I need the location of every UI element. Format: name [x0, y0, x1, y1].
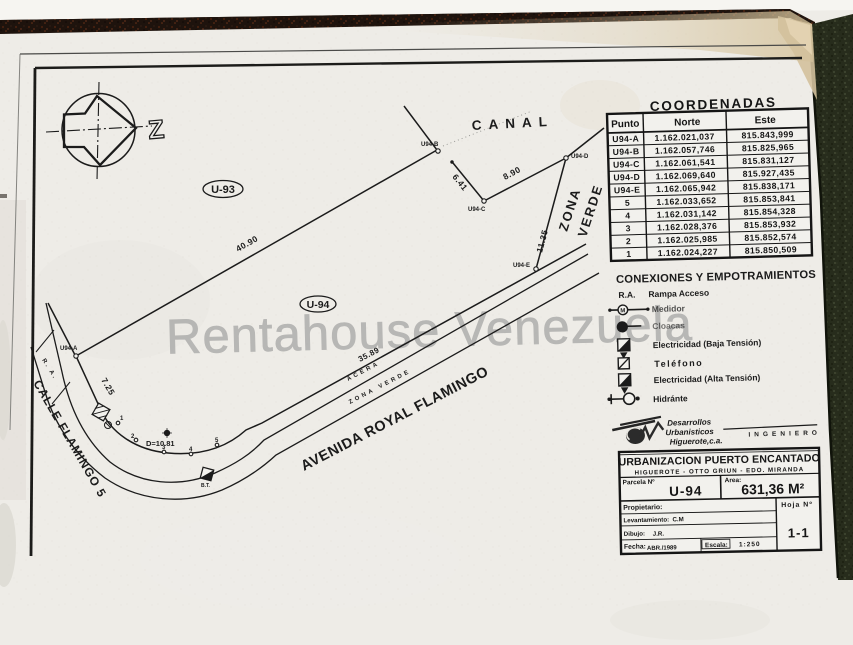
svg-text:U94-E: U94-E: [513, 263, 530, 269]
svg-text:M: M: [620, 308, 625, 314]
svg-text:J.R.: J.R.: [653, 531, 665, 538]
svg-text:U94-A: U94-A: [612, 133, 639, 144]
svg-text:1.162.025,985: 1.162.025,985: [657, 234, 717, 246]
svg-text:U94-A: U94-A: [60, 346, 78, 352]
svg-text:1.162.061,541: 1.162.061,541: [655, 157, 715, 169]
svg-text:R.A.: R.A.: [618, 290, 635, 300]
svg-text:1-1: 1-1: [788, 525, 810, 540]
svg-text:Fecha:: Fecha:: [624, 543, 646, 550]
svg-text:Propietario:: Propietario:: [623, 504, 662, 512]
svg-text:815.853,932: 815.853,932: [744, 219, 796, 230]
svg-text:U94-B: U94-B: [613, 146, 640, 157]
svg-text:Parcela Nº: Parcela Nº: [623, 479, 656, 487]
svg-text:1.162.031,142: 1.162.031,142: [657, 208, 717, 220]
svg-text:Hidránte: Hidránte: [653, 393, 688, 404]
svg-text:815.831,127: 815.831,127: [742, 155, 794, 166]
svg-text:U94-C: U94-C: [468, 207, 486, 213]
svg-text:U94-B: U94-B: [421, 142, 439, 148]
svg-text:815.853,841: 815.853,841: [743, 193, 795, 204]
svg-text:815.838,171: 815.838,171: [743, 180, 795, 191]
svg-text:B.T.: B.T.: [201, 483, 211, 489]
svg-text:Medidor: Medidor: [652, 303, 686, 314]
svg-text:1.162.028,376: 1.162.028,376: [657, 221, 717, 233]
svg-text:815.825,965: 815.825,965: [742, 142, 794, 153]
svg-text:U94-E: U94-E: [614, 185, 641, 196]
svg-text:815.852,574: 815.852,574: [744, 231, 796, 242]
svg-text:4: 4: [625, 210, 630, 220]
svg-text:1.162.057,746: 1.162.057,746: [655, 144, 715, 156]
svg-text:815.843,999: 815.843,999: [741, 129, 793, 140]
svg-text:U-94: U-94: [307, 299, 330, 311]
svg-text:U94-D: U94-D: [613, 172, 640, 183]
svg-text:1.162.069,640: 1.162.069,640: [656, 170, 716, 182]
svg-text:Escala:: Escala:: [705, 542, 728, 549]
svg-text:C.M: C.M: [672, 516, 683, 523]
svg-text:Z: Z: [147, 114, 166, 145]
svg-text:Desarrollos: Desarrollos: [667, 418, 712, 428]
svg-text:U94-D: U94-D: [571, 154, 589, 160]
svg-text:Teléfono: Teléfono: [654, 358, 703, 369]
svg-text:Norte: Norte: [674, 117, 701, 129]
svg-text:U-94: U-94: [669, 483, 703, 499]
svg-text:5: 5: [625, 198, 630, 208]
svg-text:Hoja Nº: Hoja Nº: [781, 501, 813, 509]
svg-text:3: 3: [625, 223, 630, 233]
svg-text:Punto: Punto: [611, 119, 640, 131]
svg-text:Dibujo:: Dibujo:: [624, 530, 645, 537]
svg-text:815.854,328: 815.854,328: [744, 206, 796, 217]
svg-text:1:250: 1:250: [739, 541, 761, 548]
svg-text:U94-C: U94-C: [613, 159, 640, 170]
svg-text:1.162.021,037: 1.162.021,037: [654, 131, 714, 143]
svg-text:2: 2: [626, 236, 631, 246]
svg-text:1.162.033,652: 1.162.033,652: [656, 195, 716, 207]
svg-text:Area:: Area:: [725, 477, 742, 484]
svg-text:D=10.81: D=10.81: [146, 439, 175, 448]
svg-text:Este: Este: [755, 115, 777, 127]
svg-text:1.162.065,942: 1.162.065,942: [656, 182, 716, 194]
svg-text:ABR./1989: ABR./1989: [647, 545, 677, 552]
svg-text:1: 1: [626, 249, 631, 259]
svg-text:631,36 M²: 631,36 M²: [741, 480, 805, 497]
svg-text:815.850,509: 815.850,509: [745, 244, 797, 255]
svg-text:Cloacas: Cloacas: [652, 320, 685, 331]
svg-text:Higuerote,c.a.: Higuerote,c.a.: [670, 436, 723, 446]
svg-text:815.927,435: 815.927,435: [742, 167, 794, 178]
svg-text:Rampa Acceso: Rampa Acceso: [648, 288, 709, 300]
svg-text:1.162.024,227: 1.162.024,227: [658, 246, 718, 258]
svg-text:Levantamiento:: Levantamiento:: [623, 516, 669, 524]
svg-text:U-93: U-93: [211, 184, 235, 196]
